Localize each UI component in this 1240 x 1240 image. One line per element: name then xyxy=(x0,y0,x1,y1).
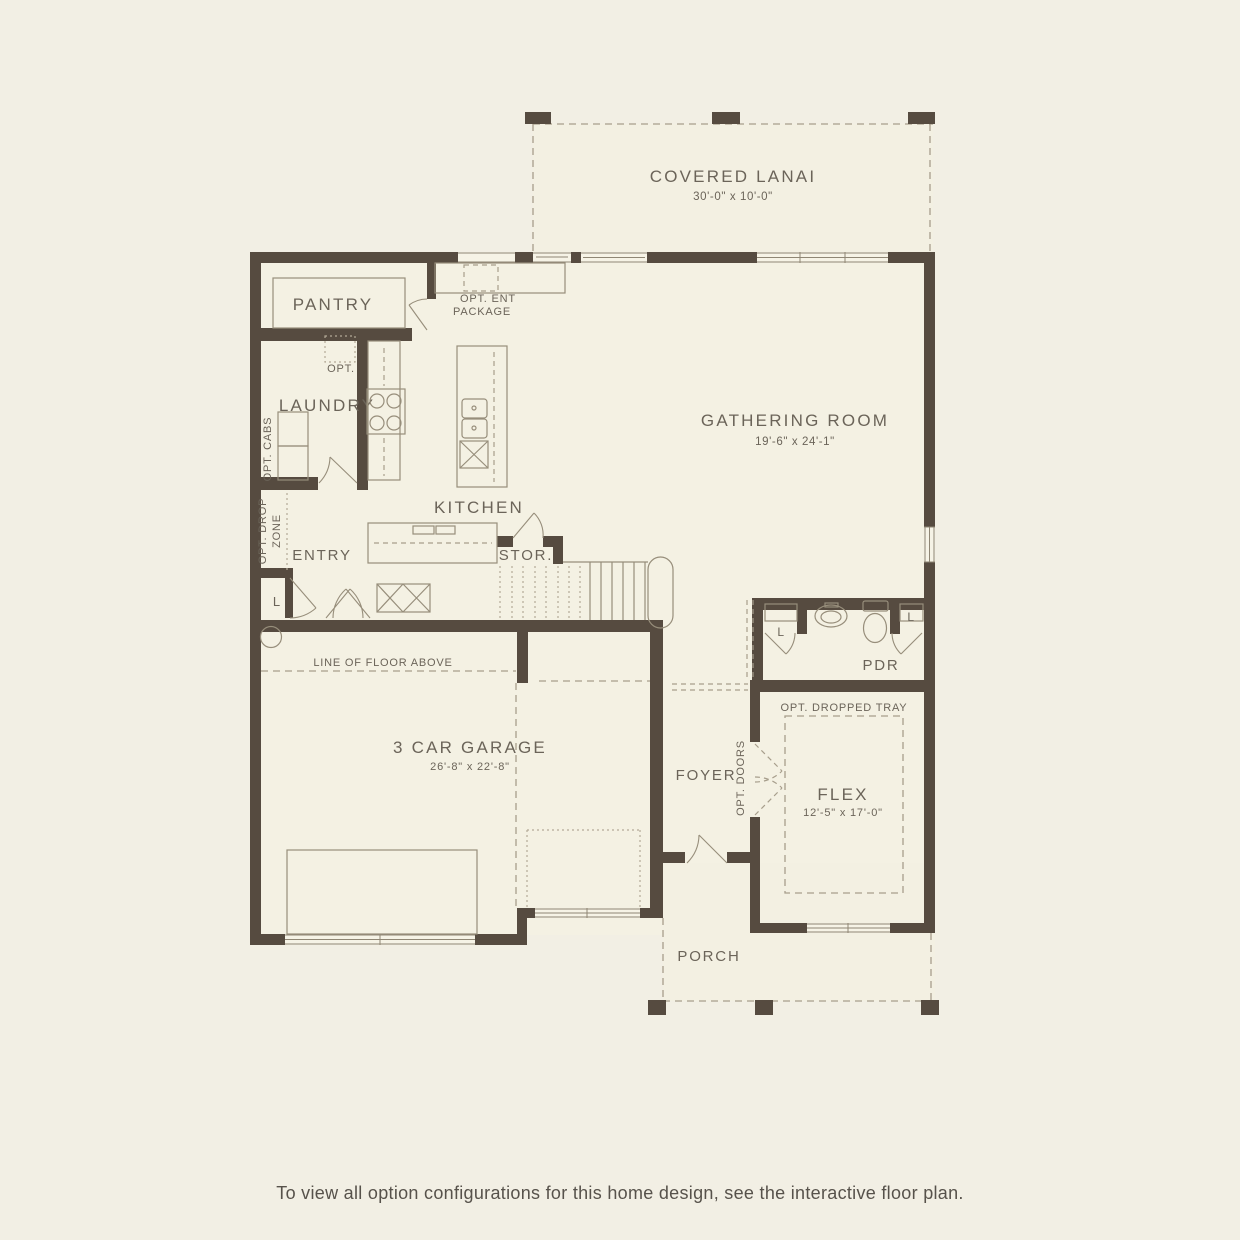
line-of-floor-above-label: LINE OF FLOOR ABOVE xyxy=(313,657,452,669)
opt-label: OPT. xyxy=(327,363,355,375)
lanai-label: COVERED LANAI xyxy=(650,167,817,186)
floor-plan-page: COVERED LANAI 30'-0" x 10'-0" xyxy=(0,0,1240,1240)
garage-dims: 26'-8" x 22'-8" xyxy=(430,761,510,773)
footer-caption: To view all option configurations for th… xyxy=(276,1183,963,1203)
lanai-post xyxy=(908,112,935,124)
porch-post xyxy=(921,1000,939,1015)
lanai-post xyxy=(525,112,551,124)
porch-label: PORCH xyxy=(677,948,740,965)
floor-plan: COVERED LANAI 30'-0" x 10'-0" xyxy=(0,0,1240,1240)
foyer-label: FOYER xyxy=(676,767,737,784)
pdr-closet2-label: L xyxy=(907,610,914,624)
opt-doors-label: OPT. DOORS xyxy=(735,740,747,816)
opt-drop-label-1: OPT. DROP xyxy=(257,498,269,565)
lanai-dims: 30'-0" x 10'-0" xyxy=(693,191,773,203)
flex-label: FLEX xyxy=(817,785,868,804)
garage-label: 3 CAR GARAGE xyxy=(393,738,547,757)
opt-drop-label-2: ZONE xyxy=(271,514,283,548)
porch-post xyxy=(755,1000,773,1015)
lanai-post xyxy=(712,112,740,124)
opt-ent-label-1: OPT. ENT xyxy=(460,293,516,305)
opt-dropped-tray-label: OPT. DROPPED TRAY xyxy=(781,702,908,714)
porch-post xyxy=(648,1000,666,1015)
entry-label: ENTRY xyxy=(292,547,352,564)
kitchen-label: KITCHEN xyxy=(434,498,524,517)
gathering-label: GATHERING ROOM xyxy=(701,411,889,430)
gathering-dims: 19'-6" x 24'-1" xyxy=(755,436,835,448)
entry-closet-label: L xyxy=(273,594,281,609)
pantry-label: PANTRY xyxy=(293,295,374,314)
stor-label: STOR. xyxy=(499,547,554,564)
flex-dims: 12'-5" x 17'-0" xyxy=(803,807,883,819)
opt-ent-label-2: PACKAGE xyxy=(453,306,511,318)
pdr-label: PDR xyxy=(862,657,899,674)
opt-cabs-label: OPT. CABS xyxy=(262,417,274,482)
pdr-closet-label: L xyxy=(777,625,784,639)
